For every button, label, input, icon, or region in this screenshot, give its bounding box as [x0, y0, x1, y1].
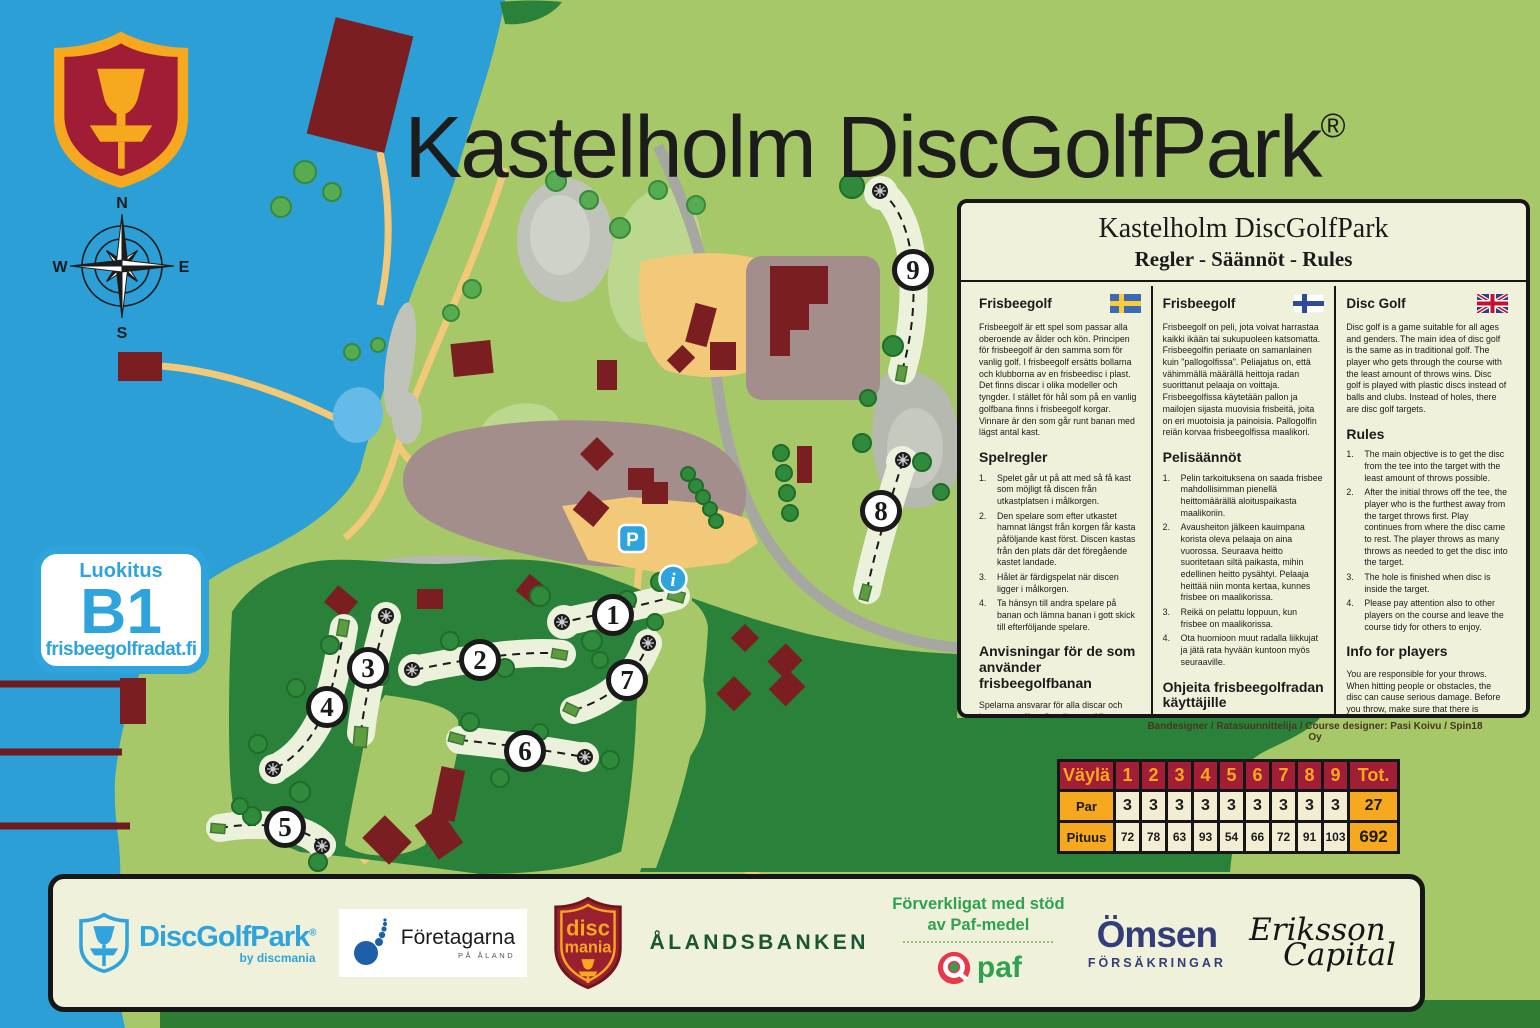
sponsor-paf: Förverkligat med stöd av Paf-medel paf [892, 894, 1064, 991]
svg-text:disc: disc [567, 915, 611, 940]
length-total: 692 [1349, 822, 1399, 853]
course-poster: 1 2 3 4 5 6 7 8 9 P i [0, 0, 1540, 1028]
guide-heading: Ohjeita frisbeegolfradan käyttäjille [1163, 680, 1325, 711]
paf-dotted-divider [903, 941, 1053, 943]
rule-item: Spelet går ut på att med så få kast som … [979, 473, 1141, 508]
sponsor-foretagarna: Företagarna PÅ ÅLAND [339, 909, 527, 977]
paf-support-line1: Förverkligat med stöd [892, 894, 1064, 915]
header-cell: 3 [1167, 761, 1193, 791]
header-cell: 4 [1193, 761, 1219, 791]
column-intro: Frisbeegolf on peli, jota voivat harrast… [1163, 322, 1325, 439]
rule-item: The main objective is to get the disc fr… [1346, 449, 1508, 484]
finland-flag-icon [1293, 294, 1324, 313]
svg-text:3: 3 [361, 653, 375, 683]
discgolfpark-name: DiscGolfPark [139, 921, 309, 953]
rule-item: Avausheiton jälkeen kauimpana korista ol… [1163, 522, 1325, 604]
rule-item: Den spelare som efter utkastet hamnat lä… [979, 511, 1141, 569]
length-cell: 72 [1115, 822, 1141, 853]
rules-heading: Rules [1346, 427, 1508, 443]
score-table-header-row: Väylä 1 2 3 4 5 6 7 8 9 Tot. [1059, 761, 1399, 791]
foretagarna-logo-icon [351, 917, 393, 969]
svg-text:9: 9 [906, 255, 920, 285]
rules-list: Pelin tarkoituksena on saada frisbee mah… [1163, 473, 1325, 669]
rule-item: Please pay attention also to other playe… [1346, 598, 1508, 633]
par-cell: 3 [1167, 791, 1193, 822]
svg-text:E: E [179, 259, 190, 276]
guide-heading: Info for players [1346, 644, 1508, 660]
rule-item: Ota huomioon muut radalla liikkujat ja j… [1163, 633, 1325, 668]
guide-text: Spelarna ansvarar för alla discar och ka… [979, 700, 1141, 718]
rating-website: frisbeegolfradat.fi [41, 639, 201, 661]
rules-list: The main objective is to get the disc fr… [1346, 449, 1508, 633]
rules-column-finnish: Frisbeegolf Frisbeegolf on peli, jota vo… [1151, 286, 1335, 718]
par-row: Par 3 3 3 3 3 3 3 3 3 27 [1059, 791, 1399, 822]
par-cell: 3 [1141, 791, 1167, 822]
rules-column-swedish: Frisbeegolf Frisbeegolf är ett spel som … [969, 286, 1151, 718]
parking-icon: P [619, 525, 646, 552]
paf-support-line2: av Paf-medel [892, 915, 1064, 936]
hole-marker-8: 8 [863, 493, 900, 530]
header-cell: 6 [1245, 761, 1271, 791]
sponsor-discmania: disc mania [550, 895, 626, 991]
svg-text:S: S [117, 325, 128, 342]
header-cell: Tot. [1349, 761, 1399, 791]
svg-text:mania: mania [565, 939, 613, 957]
par-total: 27 [1349, 791, 1399, 822]
guide-heading: Anvisningar för de som använder frisbeeg… [979, 644, 1141, 691]
svg-text:N: N [116, 195, 128, 212]
discmania-shield-icon: disc mania [550, 895, 626, 991]
column-heading: Frisbeegolf [1163, 296, 1236, 311]
sponsor-eriksson-capital: Eriksson Capital [1249, 916, 1396, 971]
par-cell: 3 [1323, 791, 1349, 822]
hole-marker-9: 9 [895, 252, 932, 289]
svg-text:2: 2 [473, 645, 487, 675]
designer-credit: Bandesigner / Ratasuunnittelija / Course… [1140, 721, 1490, 743]
rules-panel-title: Kastelholm DiscGolfPark [969, 213, 1518, 245]
header-cell: Väylä [1059, 761, 1115, 791]
length-cell: 78 [1141, 822, 1167, 853]
header-cell: 5 [1219, 761, 1245, 791]
svg-text:8: 8 [874, 496, 888, 526]
info-icon: i [660, 566, 687, 593]
length-cell: 72 [1271, 822, 1297, 853]
header-cell: 9 [1323, 761, 1349, 791]
discgolfpark-reg: ® [309, 927, 315, 938]
foretagarna-sub: PÅ ÅLAND [401, 951, 515, 960]
column-heading: Frisbeegolf [979, 296, 1052, 311]
column-heading: Disc Golf [1346, 296, 1405, 311]
svg-text:6: 6 [518, 736, 532, 766]
svg-text:4: 4 [320, 692, 334, 722]
sponsor-discgolfpark: DiscGolfPark® by discmania [77, 912, 316, 974]
registered-mark: ® [1321, 107, 1346, 145]
row-label: Pituus [1059, 822, 1115, 853]
rule-item: Hålet är färdigspelat när discen ligger … [979, 572, 1141, 595]
par-cell: 3 [1115, 791, 1141, 822]
foretagarna-name: Företagarna [401, 926, 515, 950]
park-shield-logo [45, 27, 197, 191]
paf-wordmark: paf [977, 951, 1022, 985]
omsen-sub: FÖRSÄKRINGAR [1088, 956, 1226, 970]
rule-item: Pelin tarkoituksena on saada frisbee mah… [1163, 473, 1325, 520]
par-cell: 3 [1193, 791, 1219, 822]
rules-panel-subtitle: Regler - Säännöt - Rules [969, 247, 1518, 272]
par-cell: 3 [1219, 791, 1245, 822]
length-cell: 93 [1193, 822, 1219, 853]
header-cell: 7 [1271, 761, 1297, 791]
sponsor-alandsbanken: ÅLANDSBANKEN [650, 931, 869, 955]
score-table: Väylä 1 2 3 4 5 6 7 8 9 Tot. Par 3 3 3 3… [1057, 759, 1400, 854]
svg-text:1: 1 [606, 600, 620, 630]
rules-heading: Pelisäännöt [1163, 450, 1325, 466]
sponsor-bar: DiscGolfPark® by discmania Företagarna P… [48, 874, 1425, 1012]
omsen-name: Ömsen [1088, 916, 1226, 953]
rules-list: Spelet går ut på att med så få kast som … [979, 473, 1141, 634]
paf-logo: paf [935, 949, 1022, 987]
hole-marker-4: 4 [309, 689, 346, 726]
length-cell: 63 [1167, 822, 1193, 853]
par-cell: 3 [1245, 791, 1271, 822]
par-cell: 3 [1271, 791, 1297, 822]
rule-item: The hole is finished when disc is inside… [1346, 572, 1508, 595]
row-label: Par [1059, 791, 1115, 822]
hole-marker-1: 1 [595, 597, 632, 634]
length-row: Pituus 72 78 63 93 54 66 72 91 103 692 [1059, 822, 1399, 853]
header-cell: 8 [1297, 761, 1323, 791]
guide-text: You are responsible for your throws. Whe… [1346, 669, 1508, 718]
poster-title: Kastelholm DiscGolfPark® [235, 98, 1515, 198]
svg-text:5: 5 [278, 812, 292, 842]
header-cell: 2 [1141, 761, 1167, 791]
eriksson-line2: Capital [1283, 941, 1396, 970]
disc-golf-shield-icon [45, 27, 197, 191]
svg-text:W: W [52, 259, 68, 276]
hole-marker-3: 3 [350, 650, 387, 687]
rules-column-english: Disc Golf Disc golf is a game suitable f… [1334, 286, 1518, 718]
rule-item: Ta hänsyn till andra spelare på banan oc… [979, 598, 1141, 633]
length-cell: 66 [1245, 822, 1271, 853]
column-intro: Frisbeegolf är ett spel som passar alla … [979, 322, 1141, 439]
svg-text:i: i [670, 570, 676, 591]
rules-panel-header: Kastelholm DiscGolfPark Regler - Säännöt… [961, 203, 1526, 282]
rules-panel: Kastelholm DiscGolfPark Regler - Säännöt… [957, 199, 1530, 718]
sponsor-omsen: Ömsen FÖRSÄKRINGAR [1088, 916, 1226, 970]
header-cell: 1 [1115, 761, 1141, 791]
svg-text:P: P [626, 530, 639, 551]
hole-marker-2: 2 [462, 642, 499, 679]
hole-marker-6: 6 [507, 733, 544, 770]
hole-marker-5: 5 [267, 809, 304, 846]
uk-flag-icon [1477, 294, 1508, 313]
rules-heading: Spelregler [979, 450, 1141, 466]
hole-marker-7: 7 [609, 662, 646, 699]
rule-item: After the initial throws off the tee, th… [1346, 487, 1508, 569]
length-cell: 54 [1219, 822, 1245, 853]
length-cell: 91 [1297, 822, 1323, 853]
column-intro: Disc golf is a game suitable for all age… [1346, 322, 1508, 416]
rating-badge: Luokitus B1 frisbeegolfradat.fi [33, 546, 209, 674]
sweden-flag-icon [1110, 294, 1141, 313]
discgolfpark-shield-icon [77, 912, 131, 974]
svg-text:7: 7 [620, 665, 634, 695]
rule-item: Reikä on pelattu loppuun, kun frisbee on… [1163, 607, 1325, 630]
length-cell: 103 [1323, 822, 1349, 853]
paf-circle-icon [935, 949, 973, 987]
par-cell: 3 [1297, 791, 1323, 822]
rating-value: B1 [41, 583, 201, 639]
castle [746, 256, 880, 400]
